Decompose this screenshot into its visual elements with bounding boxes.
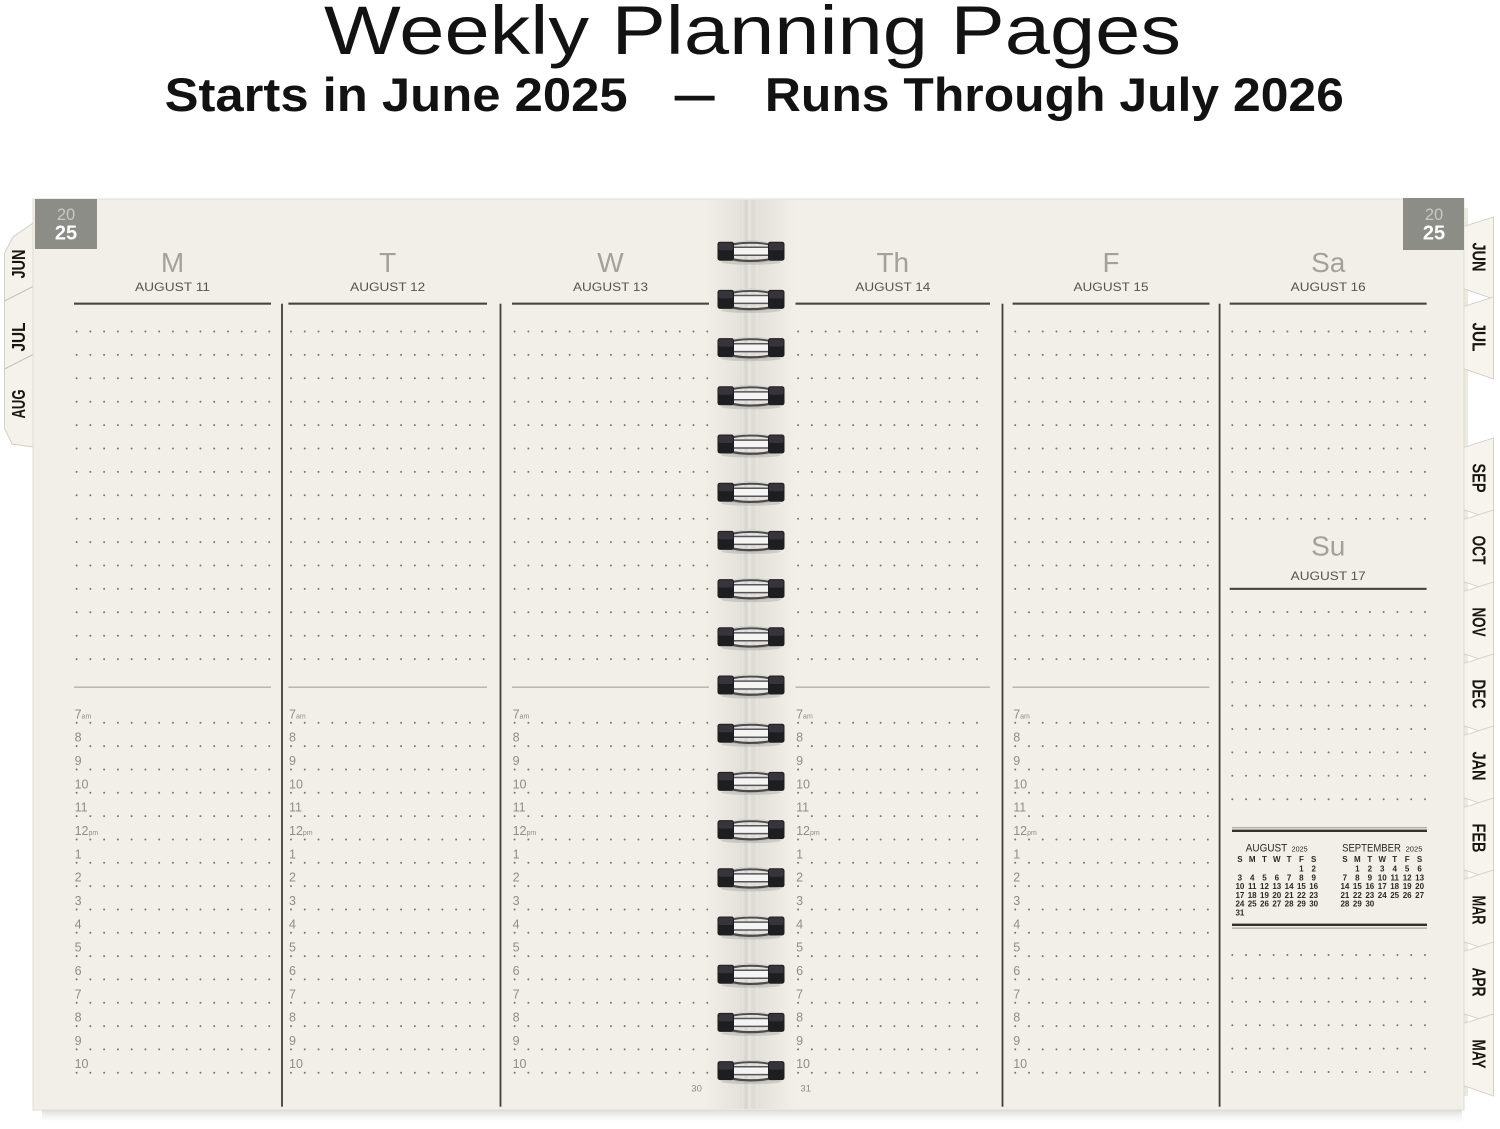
svg-text:10: 10: [1378, 873, 1387, 882]
svg-text:3: 3: [513, 894, 520, 908]
svg-text:Sa: Sa: [1311, 247, 1346, 278]
svg-text:JUL: JUL: [9, 323, 29, 352]
svg-text:T: T: [1367, 855, 1372, 864]
svg-text:FEB: FEB: [1469, 824, 1489, 853]
svg-text:14: 14: [1340, 882, 1349, 891]
svg-text:6: 6: [796, 964, 803, 978]
svg-text:JUL: JUL: [1469, 323, 1489, 352]
svg-text:2: 2: [289, 871, 296, 885]
svg-text:26: 26: [1403, 891, 1412, 900]
svg-text:30: 30: [1365, 900, 1374, 909]
svg-text:30: 30: [1309, 900, 1318, 909]
svg-text:12: 12: [1260, 882, 1269, 891]
svg-text:15: 15: [1353, 882, 1362, 891]
svg-text:F: F: [1299, 855, 1304, 864]
svg-text:2025: 2025: [1292, 845, 1308, 854]
svg-text:20: 20: [1425, 206, 1443, 224]
svg-text:S: S: [1237, 855, 1243, 864]
svg-text:3: 3: [796, 894, 803, 908]
svg-text:9: 9: [75, 1034, 82, 1048]
svg-text:M: M: [1354, 855, 1361, 864]
svg-text:23: 23: [1365, 891, 1374, 900]
svg-text:11: 11: [796, 801, 809, 815]
svg-text:SEPTEMBER: SEPTEMBER: [1342, 843, 1401, 855]
svg-text:9: 9: [289, 1034, 296, 1048]
svg-text:AUG: AUG: [9, 390, 29, 419]
svg-text:2: 2: [1013, 871, 1020, 885]
svg-text:8: 8: [289, 1011, 296, 1025]
svg-text:5: 5: [1262, 873, 1267, 882]
svg-text:5: 5: [1405, 865, 1410, 874]
svg-text:19: 19: [1403, 882, 1412, 891]
svg-text:9: 9: [1013, 754, 1020, 768]
svg-text:AUGUST: AUGUST: [1246, 843, 1288, 855]
svg-text:6: 6: [1417, 865, 1422, 874]
svg-text:Runs Through July 2026: Runs Through July 2026: [765, 68, 1344, 121]
svg-text:20: 20: [1272, 891, 1281, 900]
svg-text:1: 1: [75, 847, 82, 861]
svg-text:W: W: [1378, 855, 1386, 864]
svg-text:F: F: [1102, 247, 1119, 278]
svg-text:AUGUST 12: AUGUST 12: [350, 282, 425, 294]
svg-text:3: 3: [1013, 894, 1020, 908]
svg-text:SEP: SEP: [1469, 464, 1489, 493]
svg-text:1: 1: [796, 847, 803, 861]
svg-text:25: 25: [1248, 900, 1257, 909]
svg-text:Su: Su: [1311, 531, 1345, 562]
svg-text:10: 10: [1235, 882, 1244, 891]
svg-text:9: 9: [513, 1034, 520, 1048]
svg-text:JAN: JAN: [1469, 752, 1489, 781]
svg-text:3: 3: [75, 894, 82, 908]
svg-text:4: 4: [796, 917, 803, 931]
svg-text:5: 5: [513, 941, 520, 955]
svg-text:16: 16: [1365, 882, 1374, 891]
svg-text:10: 10: [1013, 777, 1027, 791]
svg-text:Weekly Planning Pages: Weekly Planning Pages: [324, 0, 1181, 69]
svg-text:—: —: [675, 68, 715, 121]
svg-text:24: 24: [1378, 891, 1387, 900]
svg-text:10: 10: [513, 1057, 527, 1071]
svg-text:29: 29: [1353, 900, 1362, 909]
svg-text:8: 8: [75, 1011, 82, 1025]
svg-text:31: 31: [1235, 909, 1244, 918]
svg-text:W: W: [1273, 855, 1281, 864]
svg-text:6: 6: [75, 964, 82, 978]
svg-text:8: 8: [75, 731, 82, 745]
svg-text:4: 4: [1392, 865, 1397, 874]
svg-text:9: 9: [75, 754, 82, 768]
svg-text:15: 15: [1297, 882, 1306, 891]
svg-text:2025: 2025: [1406, 845, 1423, 854]
svg-text:18: 18: [1390, 882, 1399, 891]
svg-text:Starts in June 2025: Starts in June 2025: [165, 68, 628, 121]
svg-text:9: 9: [1311, 873, 1316, 882]
svg-text:8: 8: [796, 1011, 803, 1025]
svg-text:8: 8: [796, 731, 803, 745]
svg-text:9: 9: [796, 1034, 803, 1048]
svg-text:4: 4: [1013, 917, 1020, 931]
svg-text:W: W: [597, 247, 624, 278]
svg-text:19: 19: [1260, 891, 1269, 900]
svg-text:NOV: NOV: [1469, 608, 1489, 637]
svg-text:APR: APR: [1469, 968, 1489, 997]
svg-text:8: 8: [1299, 873, 1304, 882]
svg-text:13: 13: [1415, 873, 1424, 882]
svg-text:10: 10: [75, 777, 89, 791]
svg-text:29: 29: [1297, 900, 1306, 909]
svg-text:11: 11: [1248, 882, 1257, 891]
svg-text:13: 13: [1272, 882, 1281, 891]
svg-text:AUGUST 15: AUGUST 15: [1074, 282, 1149, 294]
svg-text:7: 7: [513, 987, 520, 1001]
svg-text:11: 11: [513, 801, 526, 815]
svg-text:31: 31: [800, 1084, 811, 1095]
svg-text:AUGUST 11: AUGUST 11: [135, 282, 210, 294]
svg-text:OCT: OCT: [1469, 536, 1489, 565]
svg-text:23: 23: [1309, 891, 1318, 900]
svg-text:7: 7: [1343, 873, 1348, 882]
svg-text:6: 6: [513, 964, 520, 978]
svg-text:4: 4: [1250, 873, 1255, 882]
svg-text:M: M: [1249, 855, 1256, 864]
svg-text:AUGUST 16: AUGUST 16: [1291, 282, 1366, 294]
svg-text:S: S: [1311, 855, 1317, 864]
svg-text:17: 17: [1235, 891, 1244, 900]
svg-text:JUN: JUN: [9, 250, 29, 279]
svg-text:6: 6: [1275, 873, 1280, 882]
svg-text:17: 17: [1378, 882, 1387, 891]
svg-text:11: 11: [1390, 873, 1399, 882]
svg-text:T: T: [1287, 855, 1292, 864]
svg-text:Th: Th: [876, 247, 909, 278]
svg-text:AUGUST 14: AUGUST 14: [855, 282, 931, 294]
svg-text:10: 10: [1013, 1057, 1027, 1071]
svg-text:AUGUST 13: AUGUST 13: [573, 282, 648, 294]
svg-text:25: 25: [1423, 223, 1445, 245]
svg-text:2: 2: [75, 871, 82, 885]
svg-text:MAR: MAR: [1469, 896, 1489, 925]
svg-text:3: 3: [1238, 873, 1243, 882]
svg-text:21: 21: [1340, 891, 1349, 900]
svg-text:11: 11: [75, 801, 88, 815]
svg-text:8: 8: [1013, 731, 1020, 745]
svg-text:5: 5: [75, 941, 82, 955]
svg-text:27: 27: [1272, 900, 1281, 909]
svg-text:10: 10: [289, 1057, 303, 1071]
svg-text:2: 2: [1368, 865, 1373, 874]
svg-text:8: 8: [513, 731, 520, 745]
svg-text:3: 3: [1380, 865, 1385, 874]
svg-text:T: T: [379, 247, 396, 278]
svg-text:9: 9: [513, 754, 520, 768]
svg-text:AUGUST 17: AUGUST 17: [1291, 571, 1366, 583]
svg-text:8: 8: [1355, 873, 1360, 882]
svg-text:5: 5: [289, 941, 296, 955]
svg-text:10: 10: [796, 1057, 810, 1071]
svg-text:F: F: [1405, 855, 1410, 864]
svg-text:10: 10: [513, 777, 527, 791]
svg-text:7: 7: [1013, 987, 1020, 1001]
svg-text:9: 9: [1368, 873, 1373, 882]
svg-text:2: 2: [1311, 865, 1316, 874]
svg-text:5: 5: [796, 941, 803, 955]
svg-text:11: 11: [1013, 801, 1026, 815]
svg-text:20: 20: [57, 206, 75, 224]
svg-text:18: 18: [1248, 891, 1257, 900]
svg-text:10: 10: [796, 777, 810, 791]
svg-text:25: 25: [55, 223, 77, 245]
svg-text:7: 7: [75, 987, 82, 1001]
svg-text:20: 20: [1415, 882, 1424, 891]
svg-text:2: 2: [513, 871, 520, 885]
svg-text:5: 5: [1013, 941, 1020, 955]
svg-text:22: 22: [1297, 891, 1306, 900]
svg-text:DEC: DEC: [1469, 680, 1489, 709]
svg-text:28: 28: [1285, 900, 1294, 909]
svg-text:14: 14: [1285, 882, 1294, 891]
svg-text:1: 1: [1013, 847, 1020, 861]
svg-text:7: 7: [289, 987, 296, 1001]
svg-text:22: 22: [1353, 891, 1362, 900]
svg-text:4: 4: [513, 917, 520, 931]
svg-text:6: 6: [289, 964, 296, 978]
svg-text:1: 1: [1299, 865, 1304, 874]
svg-text:21: 21: [1285, 891, 1294, 900]
svg-text:12: 12: [1403, 873, 1412, 882]
svg-text:9: 9: [1013, 1034, 1020, 1048]
svg-text:T: T: [1392, 855, 1397, 864]
svg-text:1: 1: [289, 847, 296, 861]
svg-text:11: 11: [289, 801, 302, 815]
svg-text:MAY: MAY: [1469, 1040, 1489, 1069]
svg-text:8: 8: [513, 1011, 520, 1025]
svg-text:1: 1: [1355, 865, 1360, 874]
svg-text:24: 24: [1235, 900, 1244, 909]
svg-text:3: 3: [289, 894, 296, 908]
svg-text:M: M: [161, 247, 184, 278]
svg-text:S: S: [1417, 855, 1423, 864]
svg-text:9: 9: [289, 754, 296, 768]
svg-text:7: 7: [796, 987, 803, 1001]
svg-text:S: S: [1342, 855, 1348, 864]
svg-text:27: 27: [1415, 891, 1424, 900]
svg-text:26: 26: [1260, 900, 1269, 909]
svg-text:10: 10: [75, 1057, 89, 1071]
svg-text:4: 4: [75, 917, 82, 931]
svg-text:30: 30: [691, 1084, 702, 1095]
svg-text:25: 25: [1390, 891, 1399, 900]
svg-text:4: 4: [289, 917, 296, 931]
svg-text:8: 8: [289, 731, 296, 745]
svg-text:10: 10: [289, 777, 303, 791]
svg-text:9: 9: [796, 754, 803, 768]
svg-text:1: 1: [513, 847, 520, 861]
svg-text:28: 28: [1340, 900, 1349, 909]
svg-text:JUN: JUN: [1469, 243, 1489, 272]
svg-text:8: 8: [1013, 1011, 1020, 1025]
svg-text:T: T: [1262, 855, 1267, 864]
svg-text:16: 16: [1309, 882, 1318, 891]
svg-text:6: 6: [1013, 964, 1020, 978]
svg-text:2: 2: [796, 871, 803, 885]
svg-text:7: 7: [1287, 873, 1292, 882]
